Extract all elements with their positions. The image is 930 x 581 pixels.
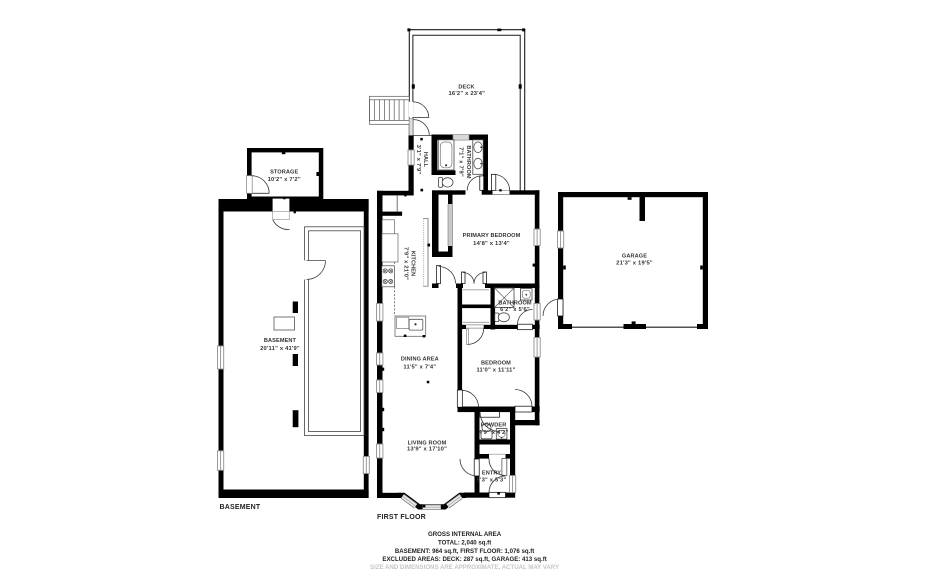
svg-text:BASEMENT: BASEMENT — [220, 504, 261, 511]
svg-text:21'3" x 19'5": 21'3" x 19'5" — [616, 261, 653, 267]
svg-text:16'2" x 23'4": 16'2" x 23'4" — [448, 91, 485, 97]
svg-text:BASEMENT: BASEMENT — [264, 338, 297, 344]
svg-text:TOTAL: 2,040 sq.ft: TOTAL: 2,040 sq.ft — [438, 539, 491, 546]
svg-text:20'11" x 41'9": 20'11" x 41'9" — [260, 346, 300, 352]
svg-text:BATHROOM: BATHROOM — [465, 145, 471, 179]
svg-text:BASEMENT: 964 sq.ft, FIRST FLO: BASEMENT: 964 sq.ft, FIRST FLOOR: 1,076 … — [395, 548, 535, 555]
svg-text:GARAGE: GARAGE — [622, 253, 647, 259]
svg-text:4'9" x 4'2": 4'9" x 4'2" — [479, 430, 509, 436]
svg-text:POWDER: POWDER — [481, 422, 507, 428]
svg-text:PRIMARY BEDROOM: PRIMARY BEDROOM — [463, 233, 521, 239]
svg-text:DINING AREA: DINING AREA — [401, 356, 439, 362]
svg-text:KITCHEN: KITCHEN — [409, 251, 415, 277]
svg-text:14'8" x 13'4": 14'8" x 13'4" — [473, 241, 510, 247]
svg-text:13'9" x 17'10": 13'9" x 17'10" — [407, 447, 447, 453]
svg-text:SIZE AND DIMENSIONS ARE APPROX: SIZE AND DIMENSIONS ARE APPROXIMATE, ACT… — [370, 564, 559, 571]
svg-text:HALL: HALL — [422, 152, 428, 168]
svg-text:6'2" x 5'6": 6'2" x 5'6" — [500, 307, 530, 313]
svg-text:BATHROOM: BATHROOM — [498, 300, 532, 306]
svg-text:10'2" x 7'2": 10'2" x 7'2" — [268, 177, 301, 183]
svg-text:GROSS INTERNAL AREA: GROSS INTERNAL AREA — [428, 531, 502, 538]
svg-text:11'5" x 7'4": 11'5" x 7'4" — [403, 364, 436, 370]
svg-text:11'0" x 11'11": 11'0" x 11'11" — [476, 368, 515, 374]
svg-text:3'1" x 7'9": 3'1" x 7'9" — [415, 145, 421, 175]
svg-text:STORAGE: STORAGE — [270, 170, 298, 176]
svg-text:7'1" x 7'9": 7'1" x 7'9" — [458, 147, 464, 177]
svg-text:7'9" x 21'0": 7'9" x 21'0" — [402, 247, 408, 280]
svg-text:EXCLUDED AREAS: DECK: 287 sq.f: EXCLUDED AREAS: DECK: 287 sq.ft, GARAGE:… — [382, 556, 546, 563]
svg-text:5'3" x 5'3": 5'3" x 5'3" — [477, 477, 507, 483]
svg-text:FIRST FLOOR: FIRST FLOOR — [377, 514, 426, 521]
svg-text:DECK: DECK — [458, 85, 474, 91]
svg-text:BEDROOM: BEDROOM — [481, 361, 511, 367]
svg-text:ENTRY: ENTRY — [482, 470, 501, 476]
